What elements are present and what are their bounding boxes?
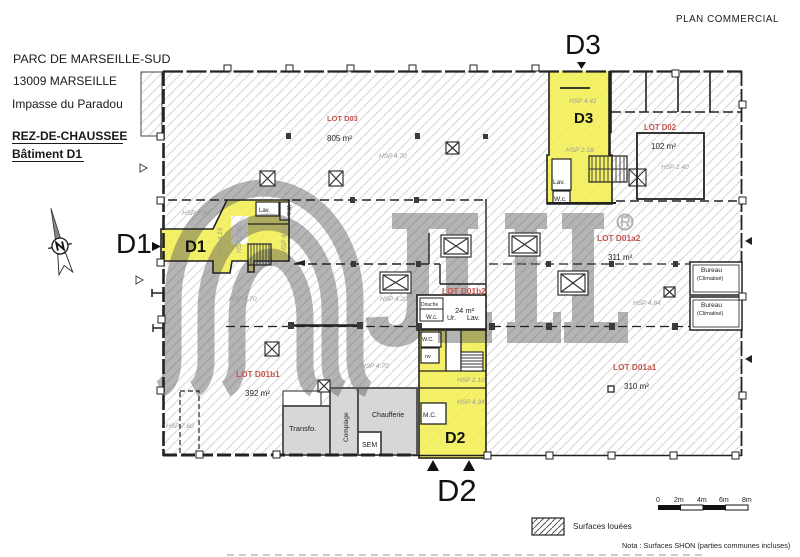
svg-text:LOT D02: LOT D02 <box>644 123 677 132</box>
svg-text:HSP 4.70: HSP 4.70 <box>361 363 389 370</box>
svg-text:W.c.: W.c. <box>554 196 567 203</box>
svg-text:PARC DE MARSEILLE-SUD: PARC DE MARSEILLE-SUD <box>13 52 170 66</box>
svg-text:Bureau: Bureau <box>701 302 722 309</box>
svg-text:HSP 2.18: HSP 2.18 <box>566 147 594 154</box>
svg-text:W.c.: W.c. <box>426 315 438 321</box>
svg-text:392 m²: 392 m² <box>245 389 270 398</box>
svg-text:LOT D01a1: LOT D01a1 <box>613 362 657 372</box>
svg-text:HSP 4.38: HSP 4.38 <box>281 225 288 253</box>
svg-text:311 m²: 311 m² <box>608 253 633 262</box>
svg-text:HSP 4.70: HSP 4.70 <box>229 296 257 303</box>
svg-text:Impasse du Paradou: Impasse du Paradou <box>12 97 123 111</box>
svg-text:24 m²: 24 m² <box>455 306 475 315</box>
svg-text:HSP 4.84: HSP 4.84 <box>633 300 661 307</box>
svg-text:Complage: Complage <box>343 412 350 442</box>
svg-text:D1: D1 <box>185 238 206 256</box>
svg-text:310 m²: 310 m² <box>624 382 649 391</box>
svg-text:HSP 2.10: HSP 2.10 <box>457 377 485 384</box>
svg-text:PLAN COMMERCIAL: PLAN COMMERCIAL <box>676 14 779 25</box>
svg-text:HSP 4.20: HSP 4.20 <box>380 296 408 303</box>
svg-text:Bâtiment D1: Bâtiment D1 <box>12 147 82 161</box>
svg-text:Nota : Surfaces SHON (parties: Nota : Surfaces SHON (parties communes i… <box>622 541 790 550</box>
svg-text:Chaufferie: Chaufferie <box>372 412 404 419</box>
svg-text:HSP 7.60: HSP 7.60 <box>166 423 194 430</box>
svg-text:Ur.: Ur. <box>447 315 456 322</box>
svg-text:Bureau: Bureau <box>701 267 722 274</box>
svg-text:D3: D3 <box>565 29 601 60</box>
svg-text:D1: D1 <box>116 228 152 259</box>
svg-text:Transfo.: Transfo. <box>289 424 316 433</box>
svg-text:SEM: SEM <box>362 442 377 449</box>
svg-text:HSP 4.41: HSP 4.41 <box>569 98 597 105</box>
svg-text:HSP 4.20: HSP 4.20 <box>513 260 541 267</box>
svg-text:(Climatisé): (Climatisé) <box>697 276 723 282</box>
svg-text:Douche: Douche <box>421 302 438 308</box>
svg-text:HFP 4.19: HFP 4.19 <box>217 227 224 255</box>
svg-text:HSP 2.40: HSP 2.40 <box>661 164 689 171</box>
svg-text:HSP 4.70: HSP 4.70 <box>379 153 407 160</box>
svg-text:Surfaces louées: Surfaces louées <box>573 522 632 531</box>
svg-text:HSP 2.80: HSP 2.80 <box>182 210 210 217</box>
svg-text:W.C.: W.C. <box>422 337 434 343</box>
svg-text:D3: D3 <box>574 110 593 127</box>
svg-text:LOT D03: LOT D03 <box>327 114 358 123</box>
svg-text:LOT D01b1: LOT D01b1 <box>236 369 280 379</box>
svg-text:Lav.: Lav. <box>467 315 480 322</box>
svg-text:HSP 2.30: HSP 2.30 <box>236 225 243 253</box>
svg-text:D2: D2 <box>445 430 466 447</box>
svg-text:(Climatisé): (Climatisé) <box>697 311 723 317</box>
svg-text:REZ-DE-CHAUSSEE: REZ-DE-CHAUSSEE <box>12 129 127 143</box>
svg-text:Lav.: Lav. <box>259 208 270 214</box>
svg-text:LOT D01a2: LOT D01a2 <box>597 233 641 243</box>
svg-text:Lav.: Lav. <box>553 179 565 186</box>
svg-text:805 m²: 805 m² <box>327 134 352 143</box>
svg-text:HSP 4.34: HSP 4.34 <box>457 399 485 406</box>
svg-text:102 m²: 102 m² <box>651 142 676 151</box>
svg-text:6m: 6m <box>719 497 729 504</box>
svg-text:LOT D01b2: LOT D01b2 <box>442 286 486 296</box>
svg-text:0: 0 <box>656 497 660 504</box>
svg-text:W.c.: W.c. <box>285 205 291 217</box>
svg-text:2m: 2m <box>674 497 684 504</box>
svg-text:M.C.: M.C. <box>423 412 437 419</box>
svg-text:8m: 8m <box>742 497 752 504</box>
svg-text:nv: nv <box>425 354 431 360</box>
svg-text:13009 MARSEILLE: 13009 MARSEILLE <box>13 74 117 88</box>
svg-text:D2: D2 <box>437 473 477 508</box>
svg-text:4m: 4m <box>697 497 707 504</box>
